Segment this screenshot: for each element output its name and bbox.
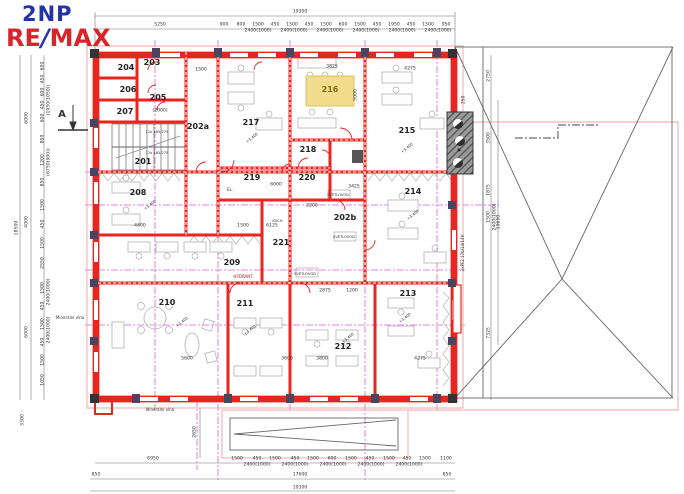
logo-slash: / xyxy=(41,24,50,52)
dimension-lines xyxy=(20,12,498,491)
furniture xyxy=(112,58,446,376)
remax-wordmark: RE/MAX xyxy=(6,26,136,50)
floor-plan-page: 2NP RE/MAX 201202a202b203204205206207208… xyxy=(0,0,684,494)
chimney-block xyxy=(447,112,473,174)
highlight-room-216 xyxy=(306,76,354,106)
roof-plan xyxy=(455,47,673,398)
floor-title: 2NP xyxy=(22,4,136,25)
remax-logo: 2NP RE/MAX xyxy=(6,4,136,50)
section-marker xyxy=(58,105,88,130)
staircase xyxy=(112,124,186,170)
floor-plan-drawing xyxy=(0,0,684,494)
entrance-canopy xyxy=(230,418,398,450)
